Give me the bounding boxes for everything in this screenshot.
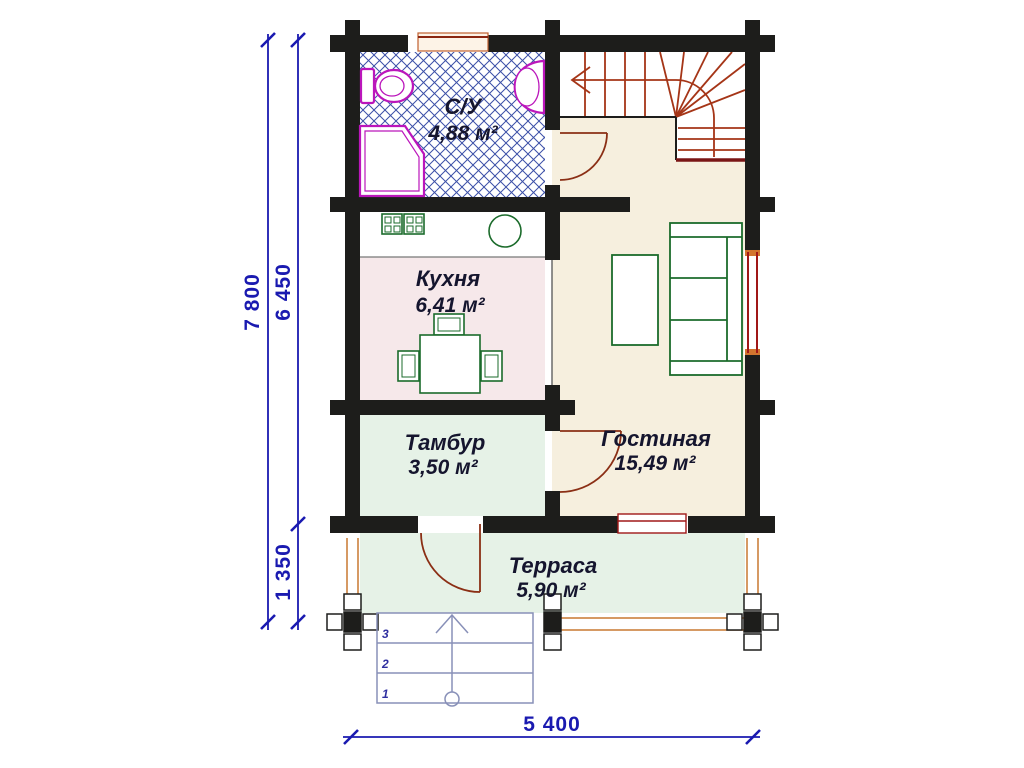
living-side-window [744,250,761,355]
floor-plan-drawing: 3 2 1 7 800 6 450 1 350 5 400 С/У 4,88 м… [0,0,1024,768]
living-label: Гостиная [601,426,711,451]
bathroom-area: 4,88 м² [427,122,498,145]
dim-width-bottom: 5 400 [523,713,581,736]
living-bottom-window [618,514,686,533]
toilet-icon [361,69,413,103]
kitchen-label: Кухня [416,266,480,291]
step-number-2: 2 [381,657,389,671]
coffee-table [612,255,658,345]
sofa [670,223,742,375]
vestibule-area: 3,50 м² [408,456,478,479]
entry-step-numbers: 3 2 1 [381,627,389,701]
log-stub [330,197,345,212]
log-stub [760,400,775,415]
post-middle [544,594,561,650]
log-stub [760,516,775,533]
vestibule-label: Тамбур [405,430,486,455]
terrace-area: 5,90 м² [516,579,586,602]
log-stub [330,35,345,52]
log-stub [330,516,345,533]
step-number-3: 3 [382,627,389,641]
bathroom-window [418,33,488,51]
bathroom-label: С/У [445,94,484,119]
log-stub [745,20,760,35]
terrace-label: Терраса [509,553,597,578]
log-stub [760,197,775,212]
kitchen-sink-icon [489,215,521,247]
dim-height-terrace: 1 350 [272,543,295,601]
log-stub [545,20,560,35]
log-stub [345,20,360,35]
dim-height-main: 6 450 [272,263,295,321]
dim-height-total: 7 800 [241,273,264,331]
step-number-1: 1 [382,687,389,701]
living-area: 15,49 м² [615,452,697,475]
entry-steps [377,613,533,706]
kitchen-area: 6,41 м² [415,294,485,317]
log-stub [330,400,345,415]
log-stub [760,35,775,52]
